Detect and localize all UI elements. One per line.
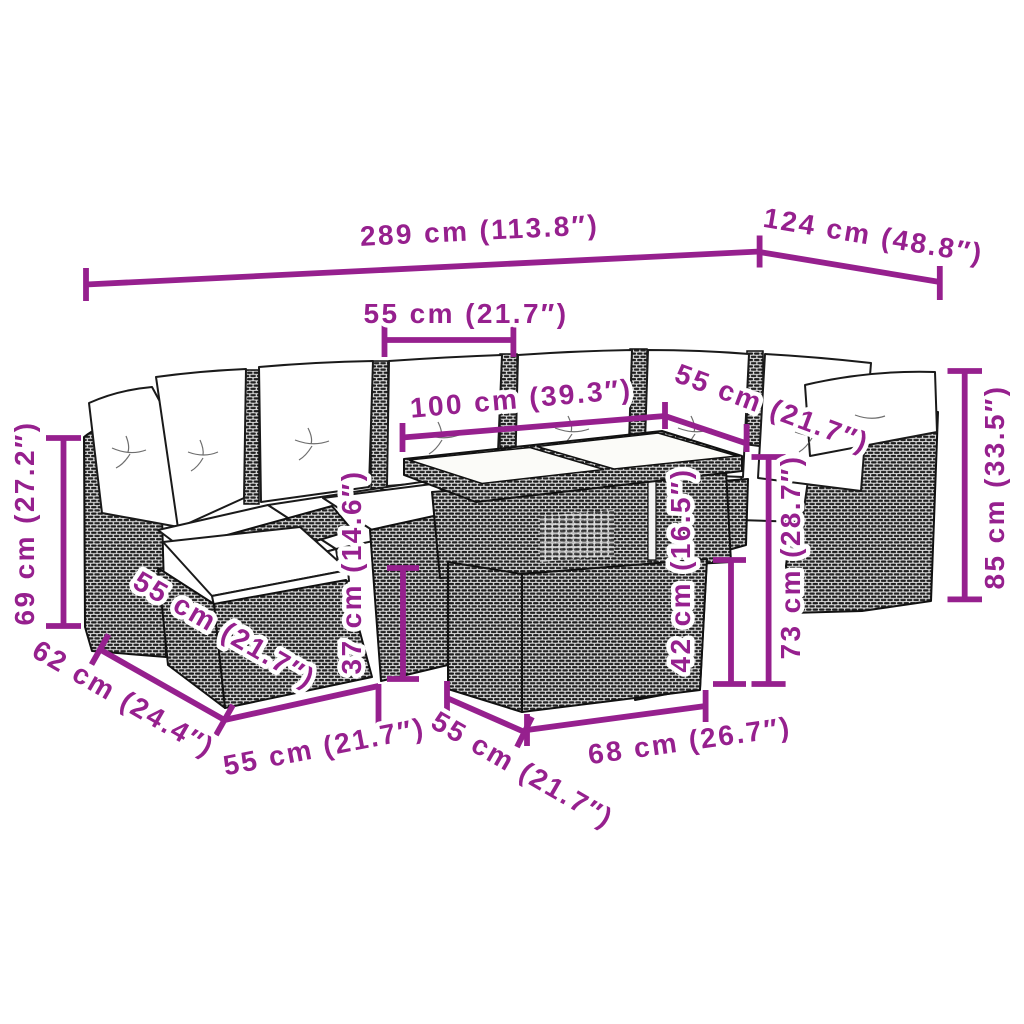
svg-text:37 cm (14.6″): 37 cm (14.6″): [336, 470, 367, 675]
svg-text:85 cm (33.5″): 85 cm (33.5″): [979, 385, 1010, 590]
svg-text:42 cm (16.5″): 42 cm (16.5″): [665, 468, 696, 673]
svg-text:69 cm (27.2″): 69 cm (27.2″): [9, 421, 40, 626]
svg-text:73 cm (28.7″): 73 cm (28.7″): [775, 455, 806, 660]
svg-text:55 cm (21.7″): 55 cm (21.7″): [364, 298, 569, 329]
